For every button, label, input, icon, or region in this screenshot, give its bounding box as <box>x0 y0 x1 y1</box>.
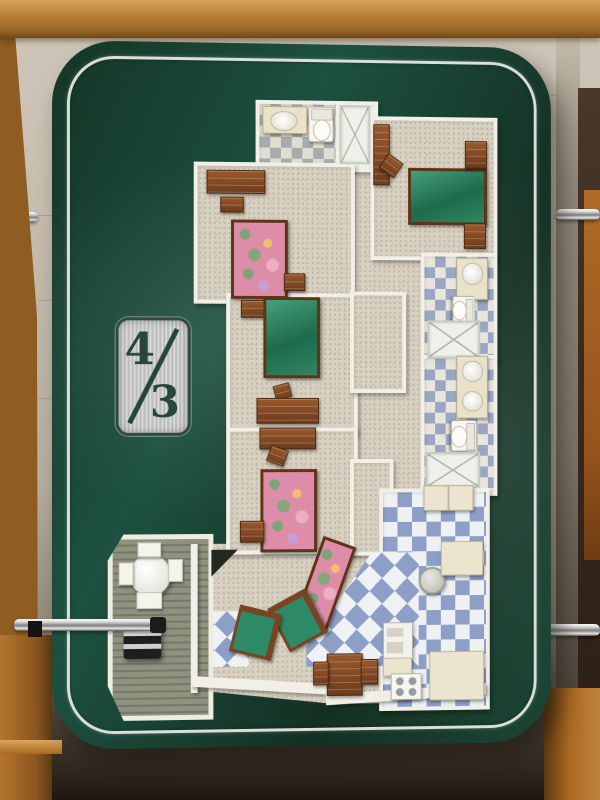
vanity-master-bath <box>456 258 488 300</box>
washer-dryer <box>424 485 474 511</box>
double-vanity-bath3 <box>456 356 488 419</box>
nightstand-bedroom3 <box>241 300 264 318</box>
photo-apartment-floorplan-model: { "badge": { "bedrooms": "4", "separator… <box>0 0 600 800</box>
case-bottom-left-ledge <box>0 740 62 754</box>
bed-floral-bedroom4 <box>260 469 317 552</box>
patio-table <box>130 554 172 596</box>
patio-chair-east <box>168 559 183 582</box>
stove <box>391 673 422 700</box>
toilet-master-bath <box>452 296 475 324</box>
chrome-rail-top-right <box>556 209 600 220</box>
display-board: 4 3 <box>52 40 551 750</box>
refrigerator <box>383 622 413 660</box>
chrome-handle-bottom-left <box>14 619 166 631</box>
bed-floral-bedroom2 <box>231 219 288 299</box>
vanity-bath2 <box>262 106 307 134</box>
bed-green-bedroom3 <box>263 297 320 378</box>
patio-chair-west <box>119 562 134 585</box>
living-room-west-wall <box>191 544 198 693</box>
nightstand-bedroom4 <box>240 521 264 543</box>
case-bottom-left-post <box>0 635 52 800</box>
case-top-wood-beam <box>0 0 600 38</box>
kitchen-cabinets-south <box>429 651 484 701</box>
desk-bedroom3 <box>257 398 319 424</box>
dining-chair-left <box>313 662 329 686</box>
shower-bath3 <box>425 452 480 489</box>
patio-chair-south <box>136 592 162 609</box>
desk-bedroom4 <box>259 428 316 450</box>
shower-master-bath <box>427 320 480 358</box>
chest-bedroom2 <box>284 273 305 291</box>
kitchen-counter-east <box>441 541 483 576</box>
dining-chair-right <box>361 659 378 685</box>
right-oak-trim <box>584 190 600 560</box>
right-wall-panel <box>556 38 580 800</box>
shower-bath2 <box>339 105 370 165</box>
chest-bedroom1 <box>465 141 487 169</box>
nightstand-bedroom1 <box>464 223 486 249</box>
dining-table <box>327 653 363 696</box>
nightstand-bedroom2 <box>220 197 244 213</box>
toilet-bath3 <box>451 420 477 451</box>
dresser-long-bedroom2 <box>206 170 265 194</box>
patio-chair-north <box>137 542 161 557</box>
bed-green-bedroom1 <box>408 168 487 226</box>
case-bottom-right-post <box>544 688 600 800</box>
room-walk-in-closet-1 <box>350 291 406 393</box>
toilet-bath2 <box>308 106 333 142</box>
